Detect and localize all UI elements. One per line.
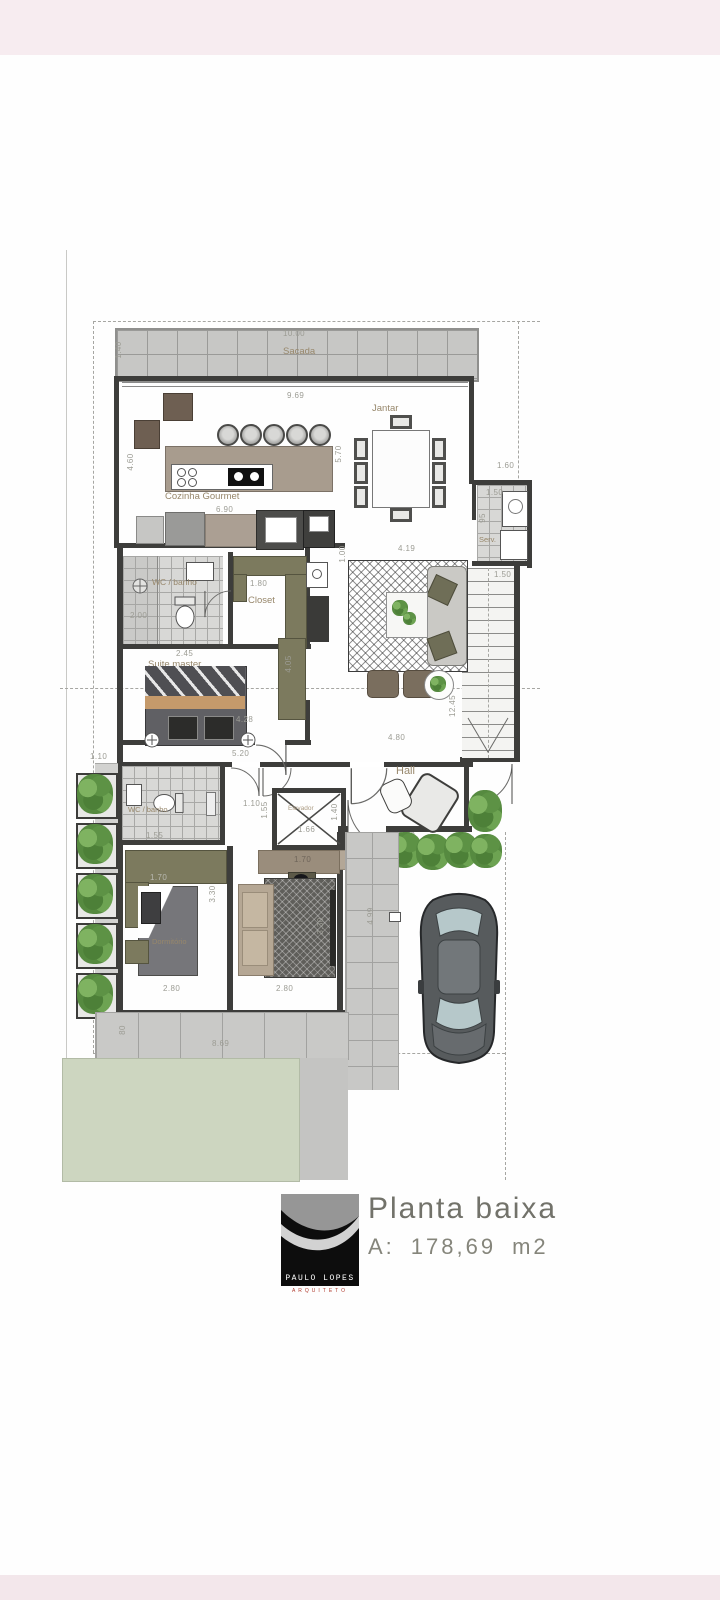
sofa-bed-cushion <box>242 892 268 928</box>
dim-dorm2-depth: 3.30 <box>317 911 325 941</box>
dining-chair <box>432 486 446 508</box>
niche-knob <box>312 569 322 579</box>
dining-chair <box>354 486 368 508</box>
front-paving <box>95 1012 349 1060</box>
cooktop-knob <box>234 472 243 481</box>
car-icon <box>418 892 500 1068</box>
floor-plan-page: 10.00 Sacada 1.40 Cozinha Gourmet 9.69 4… <box>0 0 720 1600</box>
bedroom2-rug <box>264 878 336 978</box>
area-text: A:178,69m2 <box>368 1234 565 1260</box>
dim-dorm1-width: 2.80 <box>163 985 180 993</box>
nightstand <box>125 940 149 964</box>
closet-shelf <box>285 574 307 648</box>
dining-chair <box>390 508 412 522</box>
bed-foot-box <box>204 716 234 740</box>
wall <box>469 376 474 484</box>
fridge <box>165 512 205 546</box>
dim-wardrobe1: 1.70 <box>150 874 167 882</box>
bathroom-sink <box>126 784 142 806</box>
kitchen-sink <box>136 516 164 544</box>
dim-stairs-width: 1.50 <box>494 571 511 579</box>
dormitorio-label: Dormitório <box>152 938 187 946</box>
glass-door-line <box>122 386 468 387</box>
dining-chair <box>390 415 412 429</box>
dim-hall-width: 4.80 <box>388 734 405 742</box>
toilet-icon <box>170 596 200 632</box>
lawn-area <box>62 1058 300 1182</box>
counter <box>205 514 257 547</box>
dim-sacada-width: 10.00 <box>283 330 305 338</box>
gate-marker <box>389 912 401 922</box>
stool-icon <box>309 424 331 446</box>
closet-shelf <box>233 556 307 576</box>
dining-chair <box>354 438 368 460</box>
dim-dorm1-depth: 3.30 <box>209 879 217 909</box>
towel-rail <box>206 792 216 816</box>
planter-bush-icon <box>77 774 113 814</box>
closet-shelf <box>233 574 247 602</box>
planter-bush-icon <box>77 974 113 1014</box>
top-band <box>0 0 720 55</box>
dim-serv-width: 1.50 <box>486 489 503 497</box>
dim-serv-depth: 95 <box>479 503 487 533</box>
kitchen-cabinet <box>134 420 160 449</box>
dim-wc-suite-bottom: 2.45 <box>176 650 193 658</box>
dim-estar-side: 1.00 <box>339 539 347 569</box>
dim-closet-width: 1.80 <box>250 580 267 588</box>
logo-text: PAULO LOPES <box>281 1272 359 1286</box>
stool-icon <box>263 424 285 446</box>
lamp-icon <box>240 732 256 748</box>
serv-label: Serv. <box>479 536 496 544</box>
dim-sacada-depth: 1.40 <box>115 335 123 365</box>
wc-social-label: WC / banho <box>128 806 168 814</box>
dim-door-b: 1.10 <box>243 800 260 808</box>
dim-wc-social-width: 1.55 <box>146 832 163 840</box>
elevador-label: Elevador <box>288 806 314 813</box>
dim-walkway-width: 1.10 <box>90 753 107 761</box>
jantar-label: Jantar <box>372 404 398 414</box>
sofa-bed-cushion <box>242 930 268 966</box>
area-label: A: <box>368 1234 395 1259</box>
plant-icon <box>430 676 446 692</box>
setback-dash-right-low <box>505 832 506 1180</box>
dim-corridor-width: 5.20 <box>232 750 249 758</box>
dining-table <box>372 430 430 508</box>
dim-suite-width: 4.28 <box>236 716 253 724</box>
dim-elev-side: 1.55 <box>261 795 269 825</box>
shower-area <box>123 556 158 644</box>
glass-door-line <box>122 382 468 383</box>
dining-chair <box>432 462 446 484</box>
planter-bush-icon <box>77 924 113 964</box>
oven-front <box>265 517 297 543</box>
logo-subtext: ARQUITETO <box>281 1288 359 1294</box>
dining-chair <box>432 438 446 460</box>
washer-door <box>508 499 523 514</box>
hedge-icon <box>468 790 502 832</box>
door-arc <box>350 767 388 805</box>
dim-elev-depth: 1.40 <box>331 797 339 827</box>
setback-dash-top <box>93 321 540 322</box>
area-value: 178,69 <box>411 1234 496 1259</box>
wc-door-arc <box>204 590 232 618</box>
dim-serv-top: 1.60 <box>497 462 514 470</box>
wall <box>117 840 225 845</box>
dim-driveway-length: 4.99 <box>367 901 375 931</box>
dim-dorm2-width: 2.80 <box>276 985 293 993</box>
wall <box>114 376 119 548</box>
burner-icon <box>177 468 186 477</box>
plant-icon <box>403 612 416 625</box>
wall <box>472 561 532 566</box>
dim-paving-depth: 80 <box>119 1015 127 1045</box>
stairs-arrow-icon <box>462 716 514 760</box>
bed-pillow <box>141 892 161 924</box>
closet-label: Closet <box>248 596 275 606</box>
suite-bed-band <box>145 696 245 709</box>
burner-icon <box>188 468 197 477</box>
dim-wardrobe2: 1.70 <box>294 856 311 864</box>
stool-icon <box>217 424 239 446</box>
architect-logo <box>281 1194 359 1272</box>
bed-foot-box <box>168 716 198 740</box>
bottom-band <box>0 1575 720 1600</box>
driveway <box>345 832 399 1090</box>
stool-icon <box>286 424 308 446</box>
page-title: Planta baixa <box>368 1192 557 1226</box>
hedge-icon <box>470 834 502 868</box>
dim-cozinha-height: 4.60 <box>127 447 135 477</box>
tv-panel <box>330 890 336 966</box>
kitchen-cabinet <box>163 393 193 421</box>
dim-wc-suite-width: 2.00 <box>130 612 147 620</box>
burner-icon <box>177 478 186 487</box>
area-unit: m2 <box>512 1234 549 1259</box>
dining-chair <box>354 462 368 484</box>
shower-drain-icon <box>132 578 148 594</box>
dim-varanda-width: 9.69 <box>287 392 304 400</box>
stool-icon <box>240 424 262 446</box>
wall <box>114 376 474 381</box>
pouf <box>367 670 399 698</box>
wc-suite-label: WC / banho <box>152 578 197 587</box>
dim-elev-width: 1.66 <box>298 826 315 834</box>
dim-island-side: 5.70 <box>335 439 343 469</box>
suite-bed-duvet <box>145 666 245 696</box>
cooktop-knob <box>250 472 259 481</box>
dim-stairs-length: 12.45 <box>449 691 457 721</box>
lot-edge-line <box>66 250 67 1180</box>
wall <box>220 765 225 845</box>
dim-paving-width: 8.69 <box>212 1040 229 1048</box>
planter-bush-icon <box>77 874 113 914</box>
cozinha-label: Cozinha Gourmet <box>165 492 239 502</box>
paving-block <box>298 1058 348 1180</box>
dim-suite-cabinet: 4.05 <box>285 649 293 679</box>
serv-counter <box>500 530 528 560</box>
planter-bush-icon <box>77 824 113 864</box>
wall <box>472 480 476 520</box>
sacada-label: Sacada <box>283 347 315 357</box>
door-arc <box>230 767 260 797</box>
dim-cozinha-width: 6.90 <box>216 506 233 514</box>
burner-icon <box>188 478 197 487</box>
dim-estar-width: 4.19 <box>398 545 415 553</box>
hall-label: Hall <box>396 766 415 777</box>
lamp-icon <box>144 732 160 748</box>
oven-front-small <box>309 516 329 532</box>
wall <box>227 846 233 1010</box>
wall <box>514 566 520 762</box>
